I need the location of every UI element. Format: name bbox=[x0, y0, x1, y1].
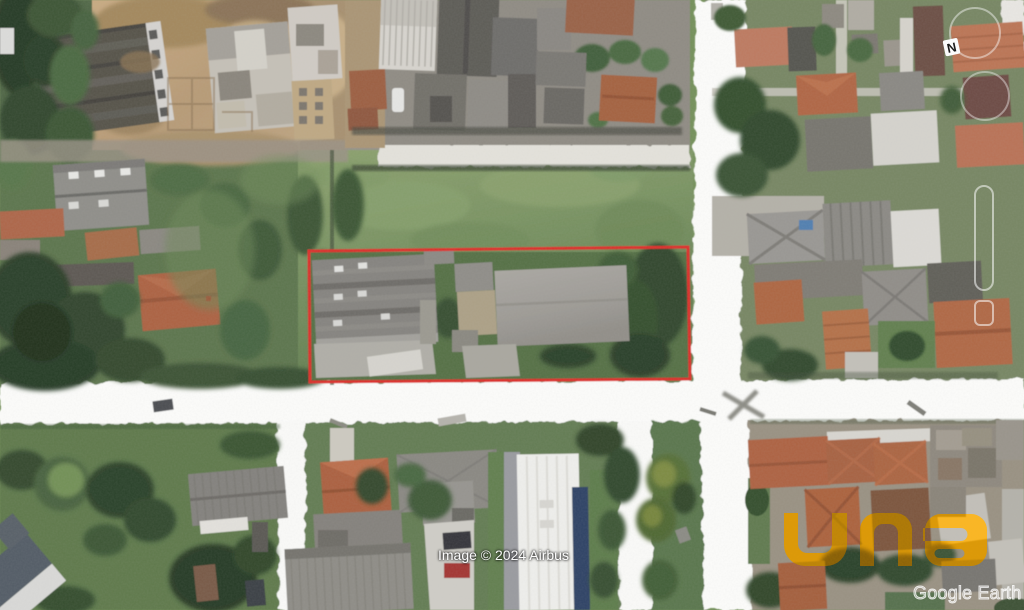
svg-text:Google Earth: Google Earth bbox=[913, 583, 1021, 603]
svg-text:Image © 2024 Airbus: Image © 2024 Airbus bbox=[438, 547, 569, 563]
